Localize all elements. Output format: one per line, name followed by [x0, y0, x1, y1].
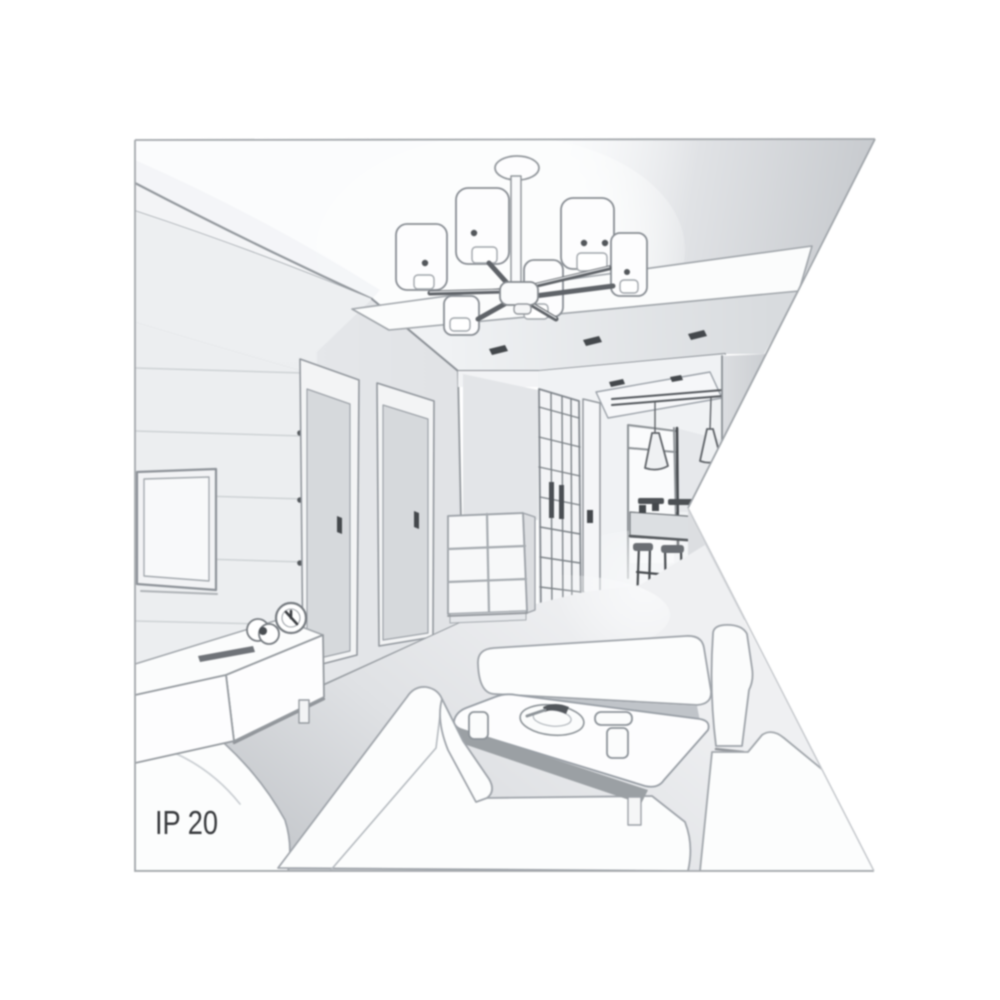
svg-text:IP 20: IP 20 [155, 804, 218, 841]
